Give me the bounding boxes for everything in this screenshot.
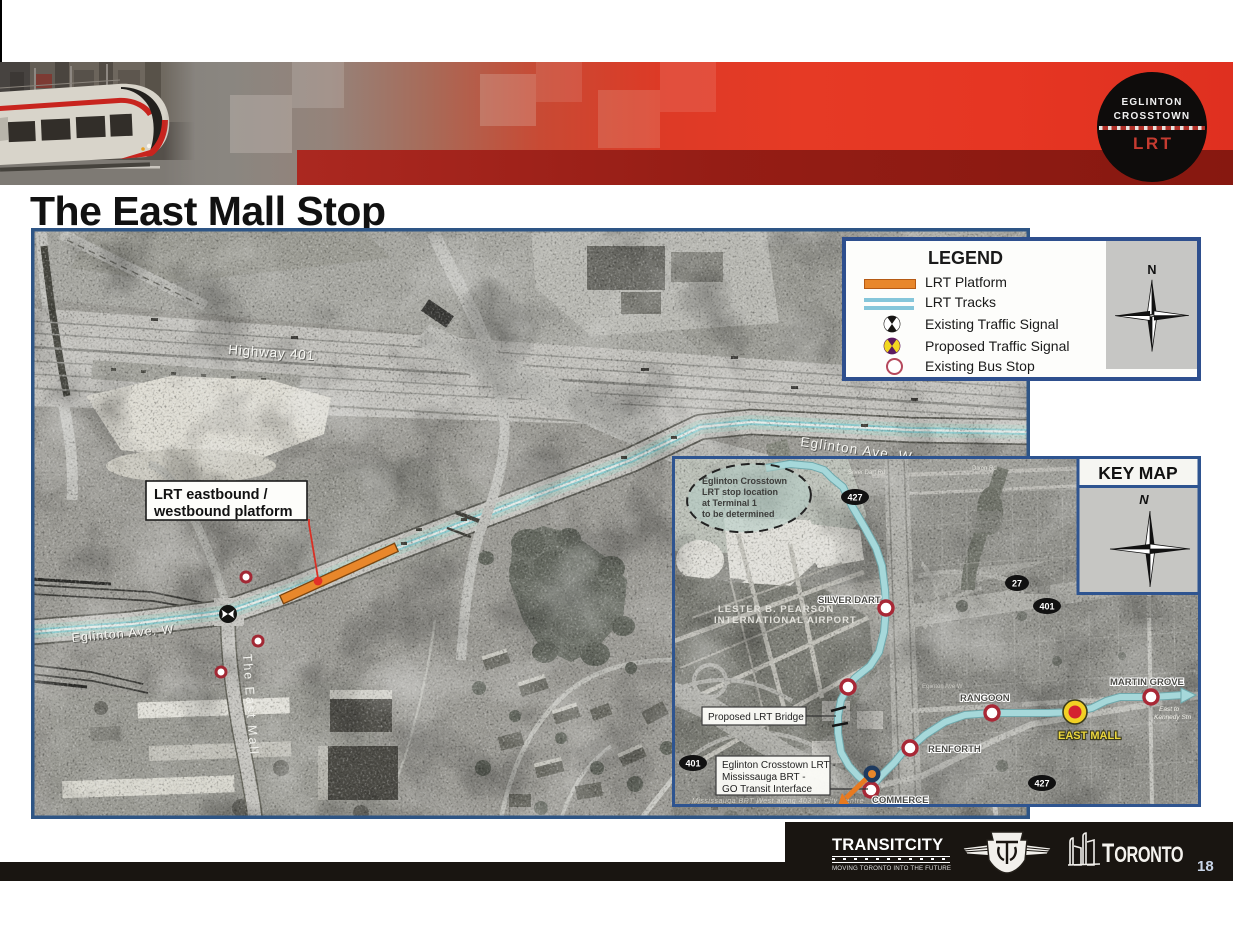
svg-text:N: N	[1147, 263, 1156, 277]
svg-text:427: 427	[1034, 779, 1049, 789]
svg-text:INTERNATIONAL AIRPORT: INTERNATIONAL AIRPORT	[714, 615, 857, 626]
svg-text:EAST MALL: EAST MALL	[1058, 730, 1121, 742]
svg-text:Mississauga BRT -: Mississauga BRT -	[722, 772, 806, 783]
svg-text:Kennedy Stn: Kennedy Stn	[1154, 714, 1192, 721]
svg-text:Mississauga BRT West along 403: Mississauga BRT West along 403 to City C…	[692, 798, 864, 805]
svg-text:KEY MAP: KEY MAP	[1098, 463, 1178, 483]
svg-text:at Terminal 1: at Terminal 1	[702, 498, 757, 508]
svg-text:Eglinton Crosstown LRT -: Eglinton Crosstown LRT -	[722, 760, 836, 771]
svg-text:LESTER B. PEARSON: LESTER B. PEARSON	[718, 604, 834, 615]
svg-text:27: 27	[1012, 579, 1022, 589]
svg-text:401: 401	[685, 759, 700, 769]
svg-text:East to: East to	[1159, 706, 1180, 713]
svg-text:Dixon Rd: Dixon Rd	[972, 466, 997, 472]
svg-text:westbound platform: westbound platform	[153, 504, 293, 520]
svg-text:to be determined: to be determined	[702, 509, 775, 519]
svg-text:Silver Dart Rd: Silver Dart Rd	[848, 470, 885, 476]
svg-text:LRT eastbound /: LRT eastbound /	[154, 487, 268, 503]
svg-text:401: 401	[1039, 602, 1054, 612]
svg-text:LRT stop location: LRT stop location	[702, 487, 778, 497]
svg-text:RENFORTH: RENFORTH	[928, 744, 981, 755]
svg-text:N: N	[1139, 492, 1149, 507]
svg-text:SILVER DART: SILVER DART	[818, 595, 881, 606]
svg-text:GO Transit Interface: GO Transit Interface	[722, 784, 812, 795]
svg-text:RANGOON: RANGOON	[960, 693, 1010, 704]
svg-text:Eglinton Crosstown: Eglinton Crosstown	[702, 476, 787, 486]
svg-text:427: 427	[847, 493, 862, 503]
svg-text:Eglinton Ave W: Eglinton Ave W	[922, 684, 963, 690]
svg-text:Proposed LRT Bridge: Proposed LRT Bridge	[708, 712, 804, 723]
svg-text:MARTIN GROVE: MARTIN GROVE	[1110, 677, 1184, 688]
